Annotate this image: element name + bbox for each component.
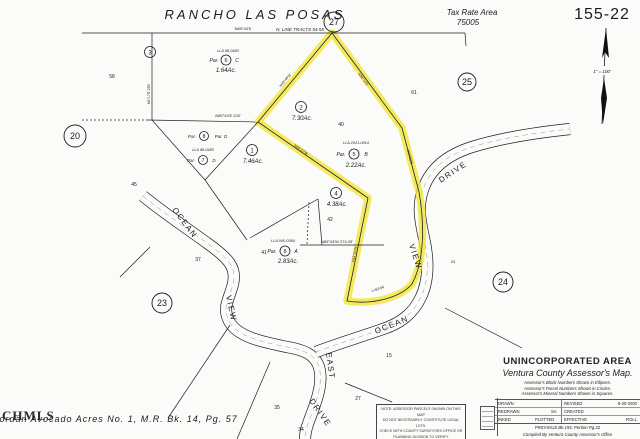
parcel-8a-acreage: 2.83Ac. — [277, 259, 298, 265]
title-block-note-3: Assessor's Mineral Numbers Shown in Squa… — [495, 391, 640, 397]
parcel-8d-prefix: Par. — [188, 134, 196, 139]
tax-rate-area-value: 75005 — [457, 18, 480, 27]
par8a-bearing-label: N89°43'W 274.29' — [321, 239, 353, 244]
parcel-7-suffix: D — [212, 158, 216, 163]
lot-15: 15 — [386, 353, 392, 359]
parcel-8a-suffix: A — [293, 249, 298, 255]
north-arrow: 1" = 100' — [588, 28, 618, 124]
top-line-name-label: N. LINE TRACTS 54-55 — [276, 27, 324, 32]
lot-34: 34 — [298, 427, 304, 433]
tb-created: CREATED — [564, 408, 584, 415]
title-block-table: DRAWN REVISED 9-20-2000 REDRAWN SA CREAT… — [495, 399, 640, 424]
note-line-2: DO NOT NECESSARILY CONSTITUTE LEGAL LOTS… — [378, 418, 464, 429]
tb-redrawn: REDRAWN — [498, 408, 519, 415]
tb-drawn: DRAWN — [498, 400, 514, 407]
title-block-left-border — [497, 398, 498, 436]
parcel-5-lla: LLA 2021-0014 — [343, 141, 369, 145]
parcel-6-prefix: Par. — [210, 58, 219, 64]
top-bearing-label: N89°43'E — [235, 26, 252, 31]
parcel-7-lla: LLA 98-0483 — [192, 148, 214, 152]
assessor-map-page: 1" = 100' 20 23 24 25 27 — [0, 0, 640, 439]
note-line-1: NOTE: ASSESSOR PARCELS SHOWN ON THIS MAP — [378, 407, 464, 418]
tb-revised: REVISED — [564, 400, 582, 407]
lot-61: 61 — [411, 90, 417, 96]
parcel-6-num: 6 — [224, 58, 227, 64]
tb-plotted: PLOTTED — [535, 416, 554, 423]
title-block-compiled: Compiled By Ventura County Assessor's Of… — [495, 432, 640, 438]
tb-revised-date: 9-20-2000 — [618, 400, 637, 407]
title-block-previous: PREVIOUS Bk.155, Portion Pg.22 — [495, 425, 640, 431]
tb-effective: EFFECTIVE — [564, 416, 587, 423]
lot-58: 58 — [109, 74, 115, 80]
parcel-1-acreage: 7.46Ac. — [243, 159, 263, 165]
parcel-5-acreage: 2.22Ac. — [345, 163, 366, 169]
block-24: 24 — [498, 277, 508, 287]
map-title: RANCHO LAS POSAS — [165, 7, 346, 22]
title-block-area: UNINCORPORATED AREA — [495, 356, 640, 367]
tax-rate-area-label: Tax Rate Area — [447, 8, 498, 17]
stamp-box — [480, 406, 495, 430]
parcel-8a-prefix: Par. — [268, 249, 277, 255]
tb-inked: INKED — [498, 416, 511, 423]
lot-27: 27 — [355, 396, 361, 402]
block-20: 20 — [70, 131, 80, 141]
lot-41: 41 — [261, 250, 267, 256]
block-25: 25 — [462, 77, 472, 87]
mid-bearing-label: N89°43'E 220' — [215, 113, 241, 118]
title-block: UNINCORPORATED AREA Ventura County Asses… — [495, 356, 640, 437]
parcel-6-acreage: 1.64Ac. — [216, 68, 236, 74]
title-block-map-name: Ventura County Assessor's Map. — [495, 368, 640, 378]
west-bearing-label: N0°17'E 250' — [147, 83, 151, 104]
block-23: 23 — [157, 298, 167, 308]
tb-redrawn-by: SA — [551, 408, 557, 415]
note-line-3: CHECK WITH COUNTY SURVEYORS OFFICE OR — [378, 429, 464, 435]
parcel-8a-lla: LLA 060-0384 — [271, 239, 295, 243]
parcel-2-acreage: 7.30Ac. — [292, 116, 312, 122]
subdivision-reference: Jordan Avocado Acres No. 1, M.R. Bk. 14,… — [0, 414, 238, 424]
parcel-5-prefix: Par. — [337, 152, 346, 158]
curve-length-label: L=63.84' — [371, 285, 385, 293]
parcel-7-num: 7 — [202, 158, 205, 164]
parcel-5-suffix: B — [364, 152, 368, 158]
scale-label: 1" = 100' — [593, 69, 611, 74]
lot-42: 42 — [327, 217, 333, 223]
note-line-4: PLANNING DIVISION TO VERIFY. — [378, 435, 464, 439]
parcel-6-suffix: C — [235, 58, 239, 64]
lot-40: 40 — [338, 122, 344, 128]
parcel-1-num: 1 — [250, 149, 254, 155]
lot-35: 35 — [274, 405, 280, 411]
parcel-8a-num: 8 — [283, 249, 286, 255]
sheet-number: 155-22 — [574, 6, 630, 23]
assessor-note-box: NOTE: ASSESSOR PARCELS SHOWN ON THIS MAP… — [376, 404, 466, 439]
parcel-5-num: 5 — [352, 152, 355, 158]
parcel-2-num: 2 — [299, 106, 303, 112]
parcel-8d-suffix: Par. D — [215, 134, 228, 139]
parcel-6-lla: LLA 98-0483 — [217, 49, 239, 53]
tb-roll: ROLL — [626, 416, 637, 423]
parcel-7-prefix: Par. — [187, 158, 195, 163]
lot-24-small: 24 — [451, 259, 456, 264]
lot-37: 37 — [195, 257, 201, 263]
lot-45: 45 — [131, 182, 137, 188]
parcel-4-num: 4 — [334, 192, 338, 198]
parcel-labels: 2 7.30Ac. 1 7.46Ac. 4 4.38Ac. 3 LLA 98-0… — [148, 49, 369, 265]
parcel-8d-num: 8 — [203, 134, 206, 140]
parcel-4-acreage: 4.38Ac. — [327, 202, 347, 208]
